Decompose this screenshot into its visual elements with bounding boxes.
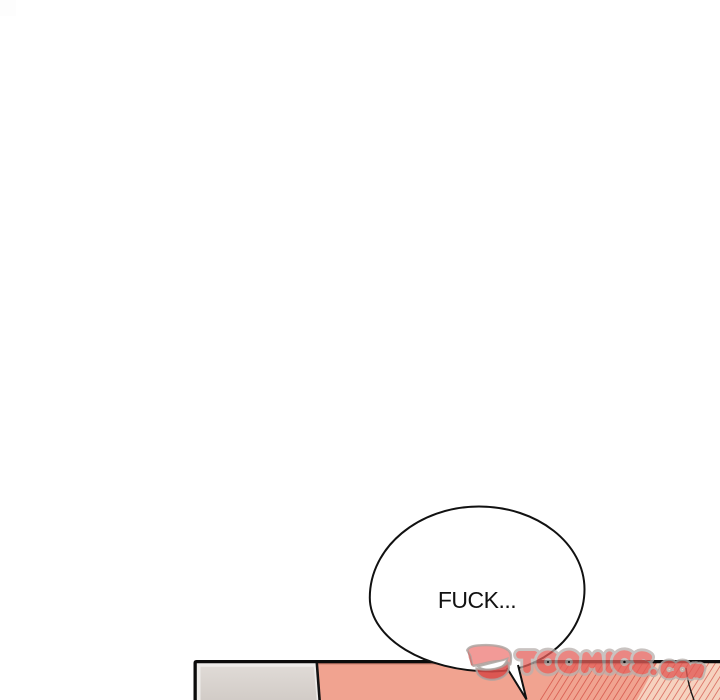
svg-text:FUCK...: FUCK... bbox=[438, 587, 516, 613]
